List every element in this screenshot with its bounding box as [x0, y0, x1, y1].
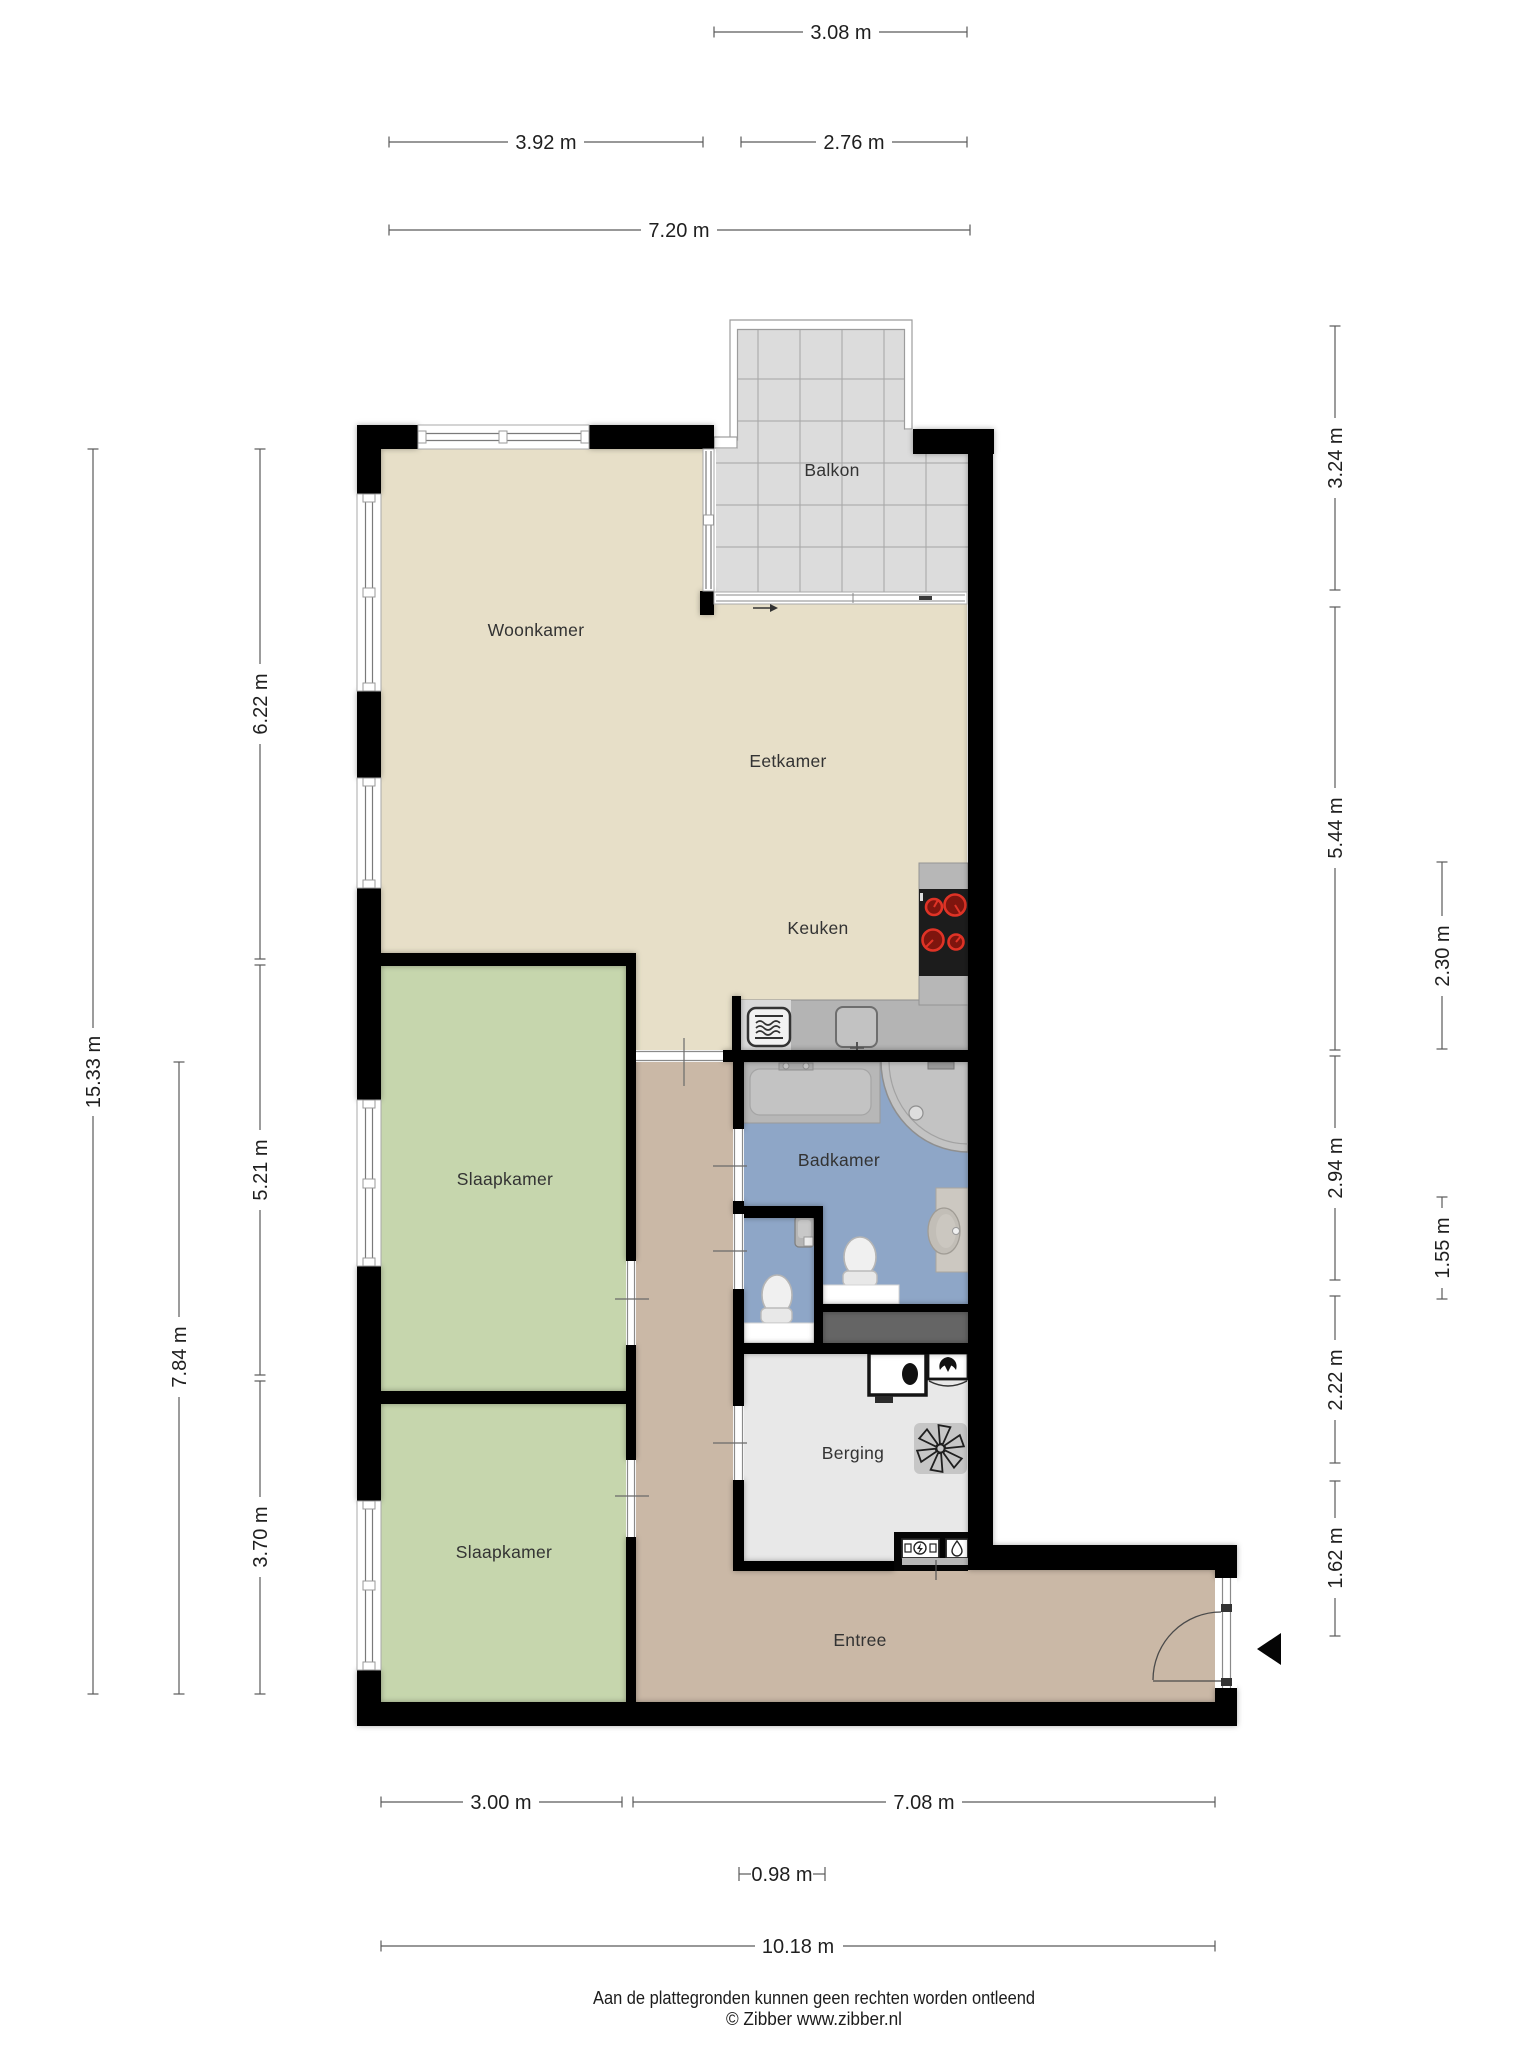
svg-text:Badkamer: Badkamer — [798, 1150, 880, 1170]
svg-text:6.22 m: 6.22 m — [250, 673, 272, 734]
svg-text:5.44 m: 5.44 m — [1325, 797, 1347, 858]
svg-text:0.98 m: 0.98 m — [751, 1864, 812, 1886]
svg-text:2.76 m: 2.76 m — [823, 132, 884, 154]
svg-text:3.08 m: 3.08 m — [810, 22, 871, 44]
svg-text:15.33 m: 15.33 m — [83, 1036, 105, 1108]
svg-text:Balkon: Balkon — [804, 460, 859, 480]
svg-text:3.00 m: 3.00 m — [470, 1792, 531, 1814]
svg-text:1.55 m: 1.55 m — [1432, 1217, 1454, 1278]
svg-text:Slaapkamer: Slaapkamer — [456, 1542, 552, 1562]
svg-text:2.30 m: 2.30 m — [1432, 925, 1454, 986]
svg-text:1.62 m: 1.62 m — [1325, 1527, 1347, 1588]
svg-text:Woonkamer: Woonkamer — [488, 620, 585, 640]
svg-text:7.08 m: 7.08 m — [893, 1792, 954, 1814]
svg-text:Keuken: Keuken — [787, 918, 848, 938]
svg-text:Entree: Entree — [833, 1630, 886, 1650]
svg-text:3.24 m: 3.24 m — [1325, 427, 1347, 488]
svg-text:Eetkamer: Eetkamer — [749, 751, 826, 771]
svg-text:7.84 m: 7.84 m — [169, 1326, 191, 1387]
svg-text:3.92 m: 3.92 m — [515, 132, 576, 154]
svg-text:10.18 m: 10.18 m — [762, 1936, 834, 1958]
svg-text:© Zibber www.zibber.nl: © Zibber www.zibber.nl — [726, 2009, 902, 2029]
svg-text:2.22 m: 2.22 m — [1325, 1349, 1347, 1410]
svg-text:5.21 m: 5.21 m — [250, 1139, 272, 1200]
svg-text:Berging: Berging — [822, 1443, 884, 1463]
svg-text:Slaapkamer: Slaapkamer — [457, 1169, 553, 1189]
svg-text:3.70 m: 3.70 m — [250, 1506, 272, 1567]
svg-text:2.94 m: 2.94 m — [1325, 1137, 1347, 1198]
svg-text:7.20 m: 7.20 m — [648, 220, 709, 242]
svg-text:Aan de plattegronden kunnen ge: Aan de plattegronden kunnen geen rechten… — [593, 1988, 1035, 2008]
